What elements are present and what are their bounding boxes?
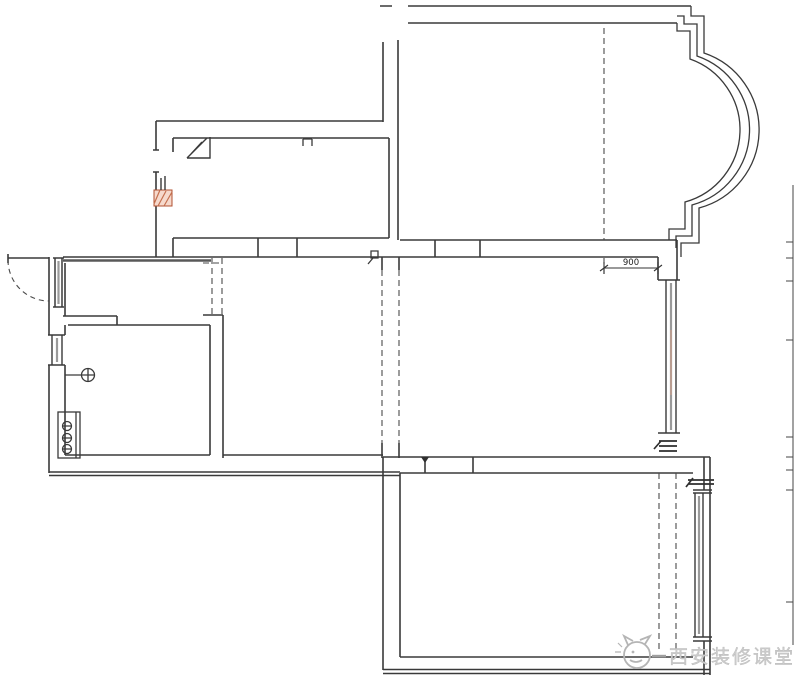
floor-plan-svg: 900 西安装修课堂: [0, 0, 796, 688]
logo-eye: [632, 651, 635, 654]
floor-plan-screenshot: 900 西安装修课堂: [0, 0, 796, 688]
watermark-text: 西安装修课堂: [669, 646, 795, 668]
dimension-label: 900: [623, 258, 639, 268]
